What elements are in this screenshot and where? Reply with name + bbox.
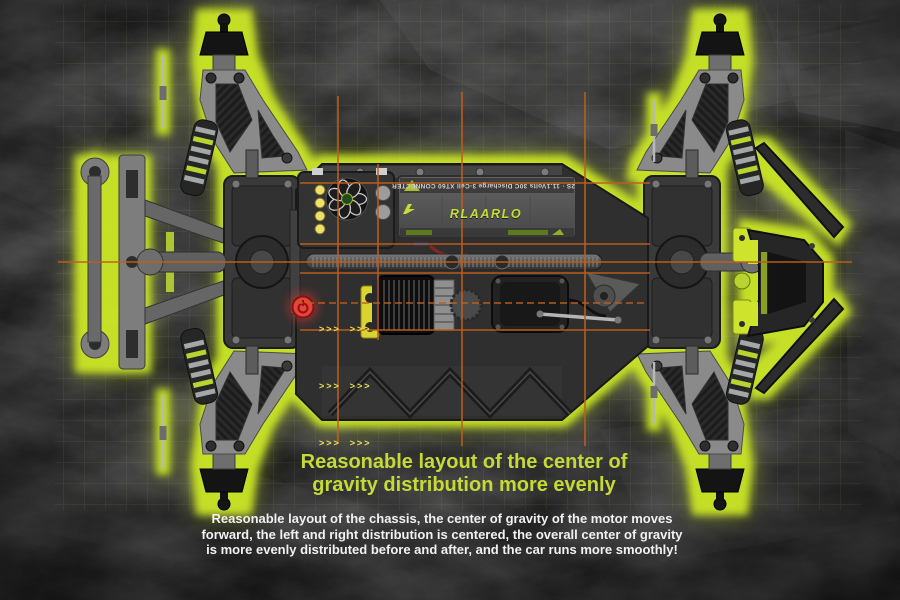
esc-module xyxy=(298,168,394,248)
power-button xyxy=(288,292,318,322)
chassis-arrow-marks: >>> >>> >>> >>> >>> >>> xyxy=(319,282,372,472)
product-promo-image: 2S · 11.1Volts 30C Discharge 3-Cell XT60… xyxy=(0,0,900,600)
headline-line2: gravity distribution more evenly xyxy=(14,474,900,497)
battery-brand: RLAARLO xyxy=(402,203,570,225)
description-line1: Reasonable layout of the chassis, the ce… xyxy=(0,511,892,527)
battery-spec-label: 2S · 11.1Volts 30C Discharge 3-Cell XT60… xyxy=(399,178,575,193)
cooling-fan xyxy=(326,178,368,220)
description-text: Reasonable layout of the chassis, the ce… xyxy=(0,511,892,558)
description-line3: is more evenly distributed before and af… xyxy=(0,542,892,558)
rc-chassis-illustration xyxy=(0,0,900,600)
battery-brand-label: RLAARLO xyxy=(450,207,522,221)
headline-line1: Reasonable layout of the center of xyxy=(14,451,900,474)
description-line2: forward, the left and right distribution… xyxy=(0,527,892,543)
headline: Reasonable layout of the center of gravi… xyxy=(14,451,900,497)
rlaarlo-logo-icon xyxy=(402,203,416,215)
